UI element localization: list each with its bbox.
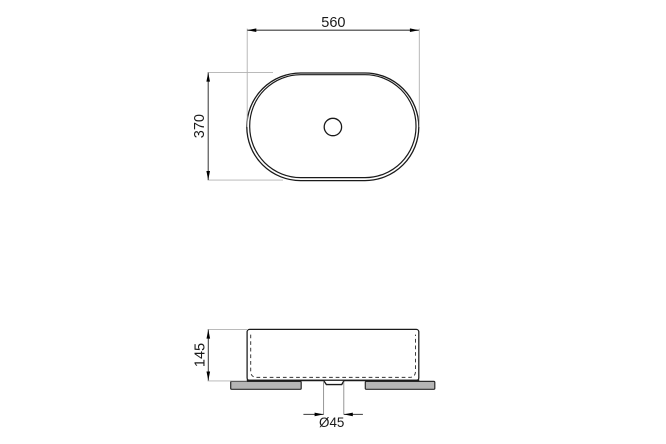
svg-text:560: 560	[321, 15, 345, 31]
svg-text:Ø45: Ø45	[319, 415, 344, 430]
svg-text:370: 370	[192, 114, 208, 138]
svg-text:145: 145	[192, 343, 208, 367]
